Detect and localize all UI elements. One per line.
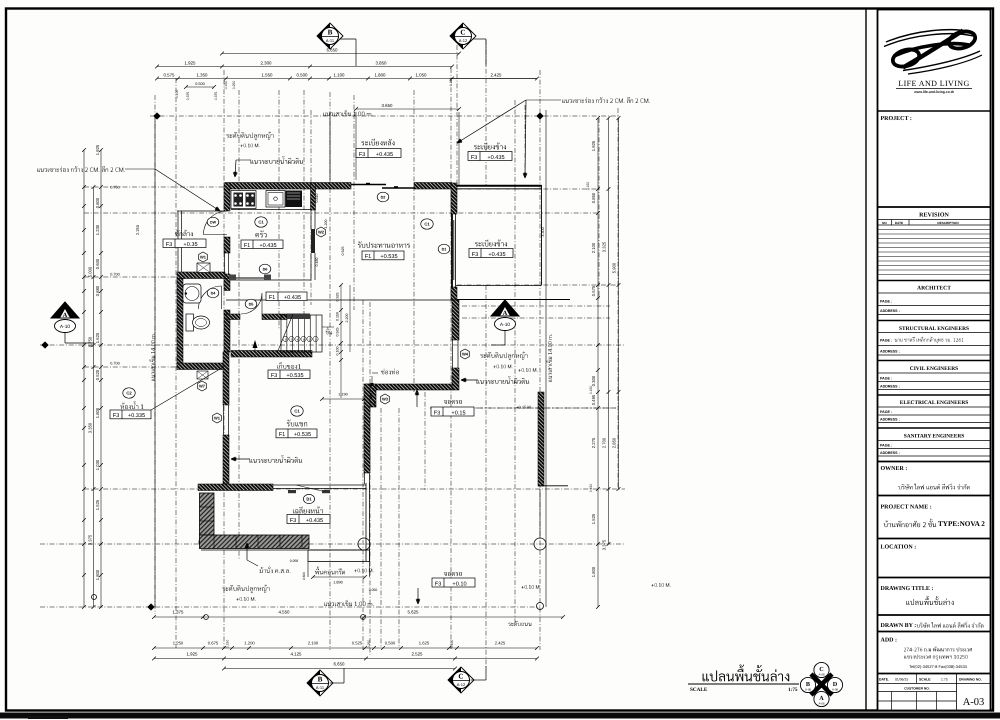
svg-text:C1: C1: [258, 220, 264, 225]
svg-text:NO: NO: [882, 221, 887, 225]
svg-text:F1: F1: [365, 254, 372, 260]
svg-text:STRUCTURAL ENGINEERS: STRUCTURAL ENGINEERS: [899, 326, 969, 332]
svg-text:REVISION: REVISION: [919, 213, 949, 219]
svg-text:+0.435: +0.435: [259, 243, 276, 249]
svg-text:1.625: 1.625: [419, 641, 430, 646]
svg-text:PAGE :: PAGE :: [880, 444, 892, 448]
svg-text:3.325: 3.325: [602, 241, 607, 252]
svg-text:0.150: 0.150: [336, 312, 340, 321]
svg-text:1.800: 1.800: [591, 566, 596, 577]
svg-text:1.890: 1.890: [333, 581, 343, 585]
svg-text:DESCRIPTION: DESCRIPTION: [937, 221, 959, 225]
svg-text:+0.15: +0.15: [451, 410, 465, 416]
svg-text:0.375: 0.375: [186, 92, 190, 101]
svg-text:3.375: 3.375: [602, 539, 607, 550]
svg-text:A-10: A-10: [60, 324, 70, 330]
svg-text:Tel(02)-34527-8 Fax(038)-3453: Tel(02)-34527-8 Fax(038)-34534: [909, 664, 968, 669]
svg-text:2.200: 2.200: [345, 314, 349, 323]
svg-text:1.350: 1.350: [197, 73, 209, 78]
svg-text:+0.335: +0.335: [128, 413, 145, 419]
svg-text:2.275: 2.275: [591, 437, 596, 448]
svg-text:3.350: 3.350: [88, 422, 93, 433]
svg-text:1.525: 1.525: [95, 499, 100, 510]
svg-text:1.925: 1.925: [591, 140, 596, 151]
svg-text:3.650: 3.650: [382, 103, 394, 108]
svg-text:0.600: 0.600: [95, 258, 100, 269]
svg-text:A-08: A-08: [818, 702, 824, 706]
svg-text:0.300: 0.300: [591, 375, 596, 386]
svg-text:F1: F1: [244, 243, 251, 249]
svg-text:1.190: 1.190: [338, 393, 348, 397]
svg-text:ADD :: ADD :: [881, 638, 898, 644]
svg-text:A-03: A-03: [963, 697, 985, 708]
svg-text:C1: C1: [294, 409, 300, 414]
svg-text:1.800: 1.800: [95, 569, 100, 580]
svg-text:F3: F3: [434, 410, 441, 416]
svg-text:0.800: 0.800: [95, 197, 100, 208]
svg-text:2.850: 2.850: [612, 437, 617, 448]
svg-text:0.050: 0.050: [369, 588, 378, 592]
svg-text:0.675: 0.675: [208, 641, 219, 646]
svg-text:1.375: 1.375: [173, 610, 185, 615]
svg-text:PROJECT :: PROJECT :: [881, 116, 912, 122]
svg-text:C: C: [458, 673, 463, 681]
svg-text:0.880: 0.880: [95, 285, 100, 296]
svg-text:01/06/15: 01/06/15: [895, 678, 908, 682]
svg-text:8.750: 8.750: [88, 336, 93, 347]
svg-text:+0.15 M.: +0.15 M.: [516, 405, 532, 410]
svg-text:2.425: 2.425: [495, 641, 506, 646]
svg-text:1.925: 1.925: [95, 144, 100, 155]
svg-text:A-11: A-11: [326, 38, 335, 43]
svg-text:2.300: 2.300: [261, 61, 273, 66]
svg-text:0.150: 0.150: [450, 640, 454, 649]
svg-text:4.550: 4.550: [279, 610, 291, 615]
svg-text:DRAWING TITLE :: DRAWING TITLE :: [881, 586, 934, 592]
svg-text:1.800: 1.800: [375, 73, 387, 78]
svg-text:1.230: 1.230: [95, 224, 100, 235]
svg-text:ADDRESS :: ADDRESS :: [880, 418, 900, 422]
svg-text:F3: F3: [166, 242, 173, 248]
svg-text:D6: D6: [263, 268, 268, 272]
svg-text:CIVIL ENGINEERS: CIVIL ENGINEERS: [910, 366, 958, 372]
svg-text:W4: W4: [462, 351, 469, 356]
svg-text:ARCHITECT: ARCHITECT: [917, 286, 951, 292]
svg-text:D1: D1: [306, 497, 312, 502]
svg-text:A: A: [63, 312, 68, 319]
svg-text:1:75: 1:75: [941, 678, 948, 682]
svg-text:F3: F3: [359, 152, 366, 158]
svg-text:6.650: 6.650: [334, 662, 346, 667]
svg-text:W7: W7: [199, 383, 206, 388]
svg-text:3.850: 3.850: [376, 61, 388, 66]
svg-text:1.550: 1.550: [262, 73, 274, 78]
svg-text:DW: DW: [210, 221, 217, 225]
svg-text:A-12: A-12: [457, 682, 466, 687]
svg-text:A-10: A-10: [500, 322, 510, 328]
svg-text:ADDRESS :: ADDRESS :: [880, 385, 900, 389]
svg-text:TYPE:NOVA 2: TYPE:NOVA 2: [938, 520, 985, 528]
svg-text:DRAWN BY :: DRAWN BY :: [881, 623, 917, 629]
svg-text:1.800: 1.800: [95, 407, 100, 418]
svg-text:2.100: 2.100: [591, 242, 596, 253]
svg-text:0.150: 0.150: [589, 484, 593, 493]
svg-text:F1: F1: [269, 295, 276, 301]
svg-text:0.375: 0.375: [214, 92, 218, 101]
svg-text:5.900: 5.900: [612, 262, 617, 273]
svg-text:5.625: 5.625: [408, 610, 420, 615]
svg-text:0.500: 0.500: [195, 82, 205, 86]
svg-text:F1: F1: [279, 432, 286, 438]
svg-text:0.575: 0.575: [164, 73, 176, 78]
svg-text:F3: F3: [472, 252, 479, 258]
svg-text:+0.435: +0.435: [376, 152, 393, 158]
svg-text:+0.535: +0.535: [294, 432, 311, 438]
svg-text:1.050: 1.050: [416, 73, 428, 78]
svg-text:F3: F3: [290, 518, 297, 524]
svg-text:5.000: 5.000: [88, 266, 93, 277]
svg-text:+0.10: +0.10: [452, 581, 466, 587]
svg-text:ADDRESS :: ADDRESS :: [880, 350, 900, 354]
svg-text:1.250: 1.250: [173, 641, 184, 646]
svg-text:2.250: 2.250: [135, 224, 140, 235]
svg-text:ADDRESS :: ADDRESS :: [880, 309, 900, 313]
svg-text:0.500: 0.500: [297, 73, 309, 78]
svg-text:+0.435: +0.435: [487, 155, 504, 161]
svg-text:1.925: 1.925: [187, 652, 199, 657]
svg-text:LIFE AND LIVING: LIFE AND LIVING: [898, 79, 969, 88]
svg-text:1.200: 1.200: [244, 641, 255, 646]
svg-text:+0.435: +0.435: [284, 295, 301, 301]
svg-text:W3: W3: [382, 396, 389, 401]
svg-text:1:75: 1:75: [788, 687, 798, 693]
svg-text:OWNER :: OWNER :: [881, 466, 908, 472]
svg-text:3.375: 3.375: [88, 534, 93, 545]
svg-text:1.620: 1.620: [95, 332, 100, 343]
svg-text:DATE.: DATE.: [879, 678, 889, 682]
svg-text:PROJECT NAME :: PROJECT NAME :: [881, 505, 932, 511]
svg-text:0.150: 0.150: [589, 386, 593, 395]
svg-text:PAGE :: PAGE :: [880, 410, 892, 414]
svg-text:SCALE: SCALE: [919, 678, 931, 682]
svg-text:PAGE :: PAGE :: [880, 300, 892, 304]
svg-text:SCALE: SCALE: [690, 687, 708, 693]
svg-text:PAGE :: PAGE :: [880, 339, 892, 343]
svg-text:0.150: 0.150: [226, 640, 230, 649]
svg-text:F3: F3: [435, 581, 442, 587]
svg-text:3.300: 3.300: [541, 227, 545, 237]
svg-text:0.495: 0.495: [591, 394, 596, 405]
svg-text:0.150: 0.150: [224, 81, 228, 90]
svg-text:+0.535: +0.535: [286, 373, 303, 379]
svg-text:C2: C2: [126, 391, 132, 396]
svg-text:+0.535: +0.535: [380, 254, 397, 260]
svg-text:ELECTRICAL ENGINEERS: ELECTRICAL ENGINEERS: [900, 400, 968, 406]
svg-text:W1: W1: [214, 415, 221, 420]
svg-text:1.925: 1.925: [185, 61, 197, 66]
svg-text:A-11: A-11: [316, 685, 325, 690]
svg-text:CUSTOMER NO.: CUSTOMER NO.: [904, 687, 930, 691]
svg-text:C: C: [460, 29, 465, 37]
svg-text:B: B: [318, 676, 323, 684]
svg-text:0.700: 0.700: [110, 362, 120, 366]
svg-text:A-08: A-08: [832, 688, 838, 692]
svg-text:D2: D2: [381, 196, 386, 200]
svg-text:0.480: 0.480: [315, 258, 319, 267]
svg-text:B: B: [328, 29, 333, 37]
svg-text:D5: D5: [249, 303, 254, 307]
svg-text:0.058: 0.058: [290, 559, 299, 563]
svg-text:F3: F3: [113, 413, 120, 419]
svg-text:ADDRESS :: ADDRESS :: [880, 451, 900, 455]
svg-text:0.700: 0.700: [110, 273, 120, 277]
svg-text:0.600: 0.600: [302, 572, 306, 580]
svg-text:1.525: 1.525: [591, 513, 596, 524]
svg-text:4.125: 4.125: [291, 652, 303, 657]
svg-text:PAGE :: PAGE :: [880, 377, 892, 381]
svg-text:+0.435: +0.435: [306, 518, 323, 524]
svg-text:A-08: A-08: [818, 673, 824, 677]
svg-text:6.650: 6.650: [327, 48, 339, 53]
svg-text:F3: F3: [471, 155, 478, 161]
svg-text:0.250: 0.250: [232, 81, 236, 90]
svg-text:D1: D1: [442, 248, 447, 252]
svg-text:0.100: 0.100: [175, 90, 179, 99]
svg-text:W2: W2: [318, 229, 325, 234]
svg-text:0.150: 0.150: [449, 78, 453, 87]
svg-text:0.850: 0.850: [591, 192, 596, 203]
svg-text:0.925: 0.925: [341, 247, 345, 256]
svg-text:0.520: 0.520: [95, 369, 100, 380]
svg-text:0.575: 0.575: [591, 285, 596, 296]
svg-text:+0.435: +0.435: [488, 252, 505, 258]
svg-text:0.750: 0.750: [110, 186, 120, 190]
svg-text:DRAWING NO.: DRAWING NO.: [959, 678, 982, 682]
svg-text:0.100: 0.100: [336, 347, 340, 356]
svg-text:LOCATION :: LOCATION :: [881, 545, 917, 551]
svg-text:+0.35: +0.35: [183, 242, 197, 248]
svg-text:DATE: DATE: [895, 221, 903, 225]
svg-text:2.700: 2.700: [602, 437, 607, 448]
svg-text:A: A: [503, 310, 508, 317]
svg-text:0.250: 0.250: [367, 640, 371, 649]
svg-text:0.925: 0.925: [336, 328, 340, 337]
svg-text:0.150: 0.150: [586, 182, 590, 191]
svg-text:www.life-and-living.co.th: www.life-and-living.co.th: [913, 90, 954, 94]
svg-text:1.030: 1.030: [95, 459, 100, 470]
svg-text:C1: C1: [424, 222, 430, 227]
svg-text:2.425: 2.425: [491, 73, 503, 78]
svg-text:1.100: 1.100: [334, 73, 346, 78]
svg-text:2.525: 2.525: [412, 652, 424, 657]
svg-text:2.100: 2.100: [308, 641, 319, 646]
svg-text:F3: F3: [271, 373, 278, 379]
svg-text:0.525: 0.525: [352, 641, 363, 646]
svg-text:W1: W1: [200, 254, 207, 259]
svg-text:1.200: 1.200: [324, 220, 328, 229]
svg-text:SANITARY ENGINEERS: SANITARY ENGINEERS: [904, 434, 964, 440]
svg-text:A-12: A-12: [459, 38, 468, 43]
svg-text:0.500: 0.500: [385, 641, 396, 646]
svg-text:A-08: A-08: [805, 688, 811, 692]
